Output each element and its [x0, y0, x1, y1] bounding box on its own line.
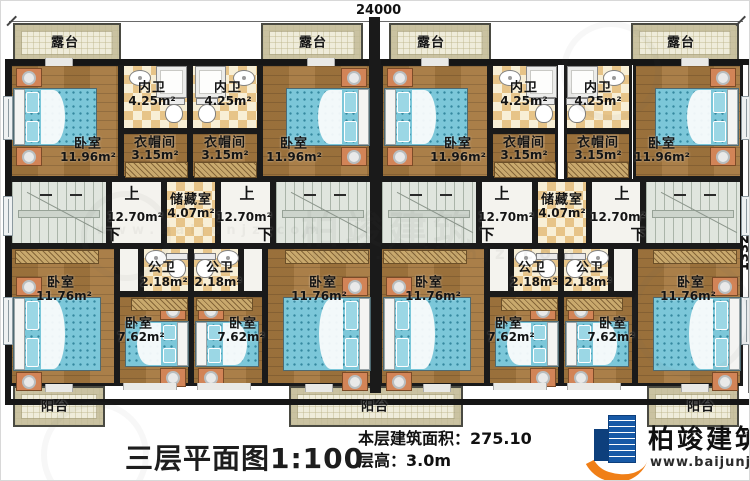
nightstand [16, 147, 42, 166]
bed [653, 297, 741, 371]
room-label: 4.07m² [167, 206, 214, 220]
nightstand [710, 147, 736, 166]
wardrobe [501, 298, 558, 311]
company-logo: 柏竣建筑 www.baijunjz.com [584, 413, 749, 479]
wardrobe [383, 250, 467, 264]
room-label: 11.76m² [405, 289, 461, 303]
floor-height-line: 层高：3.0m [358, 450, 532, 472]
room-label: 内卫 [510, 77, 538, 96]
room-label: 卧室 [495, 313, 523, 332]
bed-blanket [318, 90, 342, 144]
room-label: 阳台 [687, 396, 715, 415]
bed-pillow [533, 325, 546, 340]
room-label: 3.15m² [500, 148, 547, 162]
nightstand [341, 147, 367, 166]
room-label: 11.96m² [60, 150, 116, 164]
door-opening [423, 384, 451, 392]
company-url: www.baijunjz.com [650, 455, 750, 470]
room-label: 内卫 [584, 77, 612, 96]
room-label: 12.70m² [107, 210, 163, 224]
stair-dash [674, 194, 686, 196]
room-vest-2 [241, 246, 265, 294]
bed-pillow [715, 301, 728, 330]
bed-blanket [411, 299, 435, 369]
room-label: 上 [239, 183, 254, 204]
bed-headboard [358, 89, 369, 145]
room-label: 卧室 [309, 272, 337, 291]
logo-building-icon-back [594, 429, 608, 461]
company-name: 柏竣建筑 [648, 419, 750, 456]
room-stair-3 [379, 179, 479, 246]
room-label: 4.25m² [500, 94, 547, 108]
wardrobe [285, 250, 369, 264]
bed-pillow [26, 121, 39, 142]
logo-building-icon [608, 415, 636, 463]
bed-headboard [196, 322, 207, 366]
door-opening [197, 383, 251, 390]
bed-blanket [687, 90, 711, 144]
stair-dash [40, 194, 52, 196]
room-label: 阳台 [41, 396, 69, 415]
door-opening [681, 384, 709, 392]
room-label: 3.15m² [201, 148, 248, 162]
stair-dash [440, 194, 452, 196]
wardrobe [194, 162, 257, 178]
floor-area-line: 本层建筑面积：275.10 [358, 428, 532, 450]
stair-rail [652, 210, 735, 218]
bed-blanket [689, 299, 713, 369]
bed-pillow [345, 338, 358, 367]
bed-pillow [396, 301, 409, 330]
room-label: 4.25m² [204, 94, 251, 108]
door-opening [305, 384, 333, 392]
stair-dash [334, 194, 346, 196]
nightstand [387, 147, 413, 166]
room-label: 2.18m² [510, 275, 557, 289]
door-opening [681, 58, 709, 66]
nightstand [387, 68, 413, 87]
bed-headboard [14, 298, 25, 370]
room-label: 2.18m² [194, 275, 241, 289]
room-label: 上 [124, 183, 139, 204]
bed [283, 297, 371, 371]
door-opening [45, 384, 73, 392]
room-label: 7.62m² [117, 330, 164, 344]
room-label: 11.96m² [634, 150, 690, 164]
room-label: 上 [614, 183, 629, 204]
room-label: 卧室 [125, 313, 153, 332]
room-stair-4 [643, 179, 743, 246]
bed-pillow [26, 301, 39, 330]
room-vest-3 [487, 246, 511, 294]
bed-headboard [729, 298, 740, 370]
window-icon [3, 297, 13, 345]
room-label: 卧室 [47, 272, 75, 291]
wardrobe [494, 162, 556, 178]
bed-pillow [344, 92, 357, 113]
bed-pillow [578, 348, 591, 363]
bed-blanket [412, 90, 436, 144]
nightstand [712, 372, 738, 391]
bed-pillow [533, 348, 546, 363]
room-label: 卧室 [677, 272, 705, 291]
bed-pillow [713, 121, 726, 142]
door-opening [421, 58, 449, 66]
bed-headboard [566, 322, 577, 366]
room-label: 卧室 [280, 133, 308, 152]
room-label: 下 [105, 224, 120, 245]
bed-pillow [26, 92, 39, 113]
room-label: 4.25m² [128, 94, 175, 108]
bed [13, 297, 101, 371]
wardrobe [125, 162, 188, 178]
wardrobe [15, 250, 99, 264]
room-label: 11.76m² [36, 289, 92, 303]
room-label: 11.96m² [266, 150, 322, 164]
bed-headboard [14, 89, 25, 145]
room-label: 公卫 [206, 257, 234, 276]
stair-dash [704, 194, 716, 196]
room-label: 3.15m² [574, 148, 621, 162]
nightstand [16, 68, 42, 87]
bed-headboard [547, 322, 558, 366]
wardrobe [567, 162, 629, 178]
window-icon [741, 297, 750, 345]
room-stair-1 [9, 179, 109, 246]
window-icon [741, 196, 750, 236]
wardrobe [566, 298, 623, 311]
room-label: 卧室 [74, 133, 102, 152]
room-label: 2.18m² [564, 275, 611, 289]
room-label: 2.18m² [140, 275, 187, 289]
door-opening [567, 383, 621, 390]
room-label: 公卫 [518, 257, 546, 276]
room-label: 内卫 [138, 77, 166, 96]
door-opening [493, 383, 547, 390]
bed-headboard [177, 322, 188, 366]
stair-dash [304, 194, 316, 196]
window-icon [741, 96, 750, 140]
room-label: 11.76m² [291, 289, 347, 303]
bed-pillow [345, 301, 358, 330]
floorplan-canvas: 24000 13320 露台露台露台露台卧室11.96m²卧室11.96m²卧室… [0, 0, 750, 481]
bed-pillow [397, 121, 410, 142]
room-label: 7.62m² [217, 330, 264, 344]
room-label: 11.96m² [430, 150, 486, 164]
room-label: 公卫 [576, 257, 604, 276]
room-label: 阳台 [361, 396, 389, 415]
room-label: 卧室 [599, 313, 627, 332]
room-label: 卧室 [415, 272, 443, 291]
room-label: 12.70m² [216, 210, 272, 224]
bed-pillow [26, 338, 39, 367]
room-label: 4.25m² [574, 94, 621, 108]
wardrobe [131, 298, 188, 311]
bed-pillow [397, 92, 410, 113]
room-label: 12.70m² [478, 210, 534, 224]
bed-pillow [208, 348, 221, 363]
room-label: 12.70m² [590, 210, 646, 224]
room-label: 下 [479, 224, 494, 245]
plan-info: 本层建筑面积：275.10 层高：3.0m [358, 428, 532, 472]
door-opening [123, 383, 177, 390]
stair-dash [410, 194, 422, 196]
stair-rail [388, 210, 471, 218]
room-stair-2 [273, 179, 373, 246]
bed-blanket [319, 299, 343, 369]
room-label: 下 [630, 224, 645, 245]
bed-pillow [344, 121, 357, 142]
room-label: 内卫 [214, 77, 242, 96]
room-label: 露台 [667, 32, 695, 51]
window-icon [3, 196, 13, 236]
nightstand [16, 372, 42, 391]
bed-pillow [396, 338, 409, 367]
door-opening [307, 58, 335, 66]
door-opening [45, 58, 73, 66]
bed-pillow [713, 92, 726, 113]
party-wall [369, 17, 380, 65]
wardrobe [196, 298, 253, 311]
bed-blanket [41, 299, 65, 369]
nightstand [341, 68, 367, 87]
room-label: 储藏室 [170, 189, 212, 208]
bed-headboard [359, 298, 370, 370]
stair-dash [70, 194, 82, 196]
wardrobe [653, 250, 737, 264]
window-icon [3, 96, 13, 140]
room-label: 7.62m² [587, 330, 634, 344]
room-label: 卧室 [444, 133, 472, 152]
bed-pillow [715, 338, 728, 367]
room-label: 卧室 [229, 313, 257, 332]
room-label: 4.07m² [538, 206, 585, 220]
bed [383, 297, 471, 371]
room-label: 下 [257, 224, 272, 245]
nightstand [342, 372, 368, 391]
room-label: 7.62m² [487, 330, 534, 344]
stair-rail [282, 210, 365, 218]
room-vest-4 [611, 246, 635, 294]
room-label: 3.15m² [131, 148, 178, 162]
room-label: 露台 [417, 32, 445, 51]
party-wall [370, 59, 381, 393]
room-label: 11.76m² [660, 289, 716, 303]
room-label: 公卫 [148, 257, 176, 276]
bed-pillow [163, 348, 176, 363]
room-label: 储藏室 [541, 189, 583, 208]
room-label: 露台 [299, 32, 327, 51]
bed-blanket [41, 90, 65, 144]
stair-rail [18, 210, 101, 218]
top-dimension-value: 24000 [353, 3, 404, 18]
room-label: 上 [494, 183, 509, 204]
bed-headboard [385, 89, 396, 145]
room-label: 卧室 [648, 133, 676, 152]
bed-headboard [384, 298, 395, 370]
plan-title: 三层平面图1:100 [119, 437, 370, 481]
room-vest-1 [117, 246, 141, 294]
bed-pillow [163, 325, 176, 340]
bed-headboard [727, 89, 738, 145]
room-label: 露台 [51, 32, 79, 51]
nightstand [386, 372, 412, 391]
nightstand [710, 68, 736, 87]
